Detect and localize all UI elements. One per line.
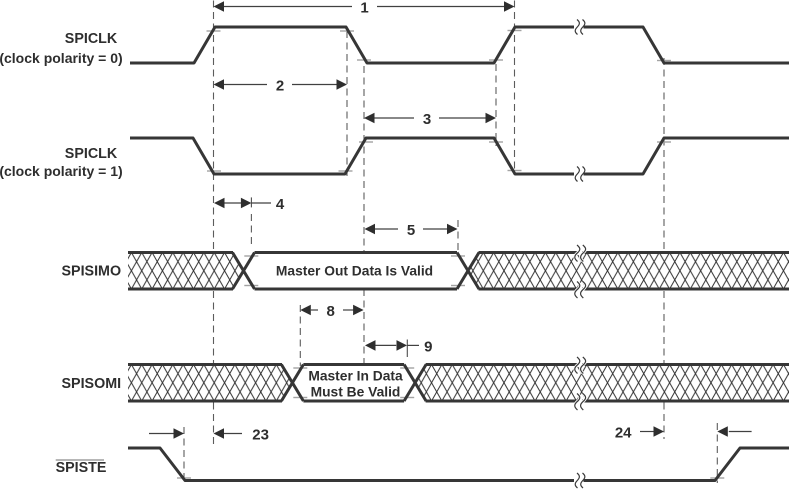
svg-text:Must Be Valid: Must Be Valid	[311, 384, 401, 399]
svg-text:SPISOMI: SPISOMI	[62, 376, 122, 392]
svg-text:SPICLK: SPICLK	[65, 31, 118, 47]
svg-text:SPICLK: SPICLK	[65, 146, 118, 162]
svg-text:4: 4	[276, 196, 285, 213]
svg-text:(clock polarity = 0): (clock polarity = 0)	[0, 50, 123, 66]
svg-text:Master In Data: Master In Data	[308, 369, 403, 384]
svg-text:2: 2	[276, 77, 284, 94]
svg-text:9: 9	[424, 338, 432, 355]
svg-text:SPISTE: SPISTE	[56, 460, 107, 476]
svg-text:24: 24	[615, 424, 632, 441]
svg-text:SPISIMO: SPISIMO	[62, 263, 122, 279]
svg-text:23: 23	[252, 426, 269, 443]
svg-text:5: 5	[407, 222, 415, 239]
svg-text:1: 1	[360, 0, 368, 16]
svg-text:(clock polarity = 1): (clock polarity = 1)	[0, 163, 123, 179]
svg-text:8: 8	[327, 303, 335, 320]
svg-text:3: 3	[423, 111, 431, 128]
svg-text:Master Out Data Is Valid: Master Out Data Is Valid	[276, 264, 433, 279]
